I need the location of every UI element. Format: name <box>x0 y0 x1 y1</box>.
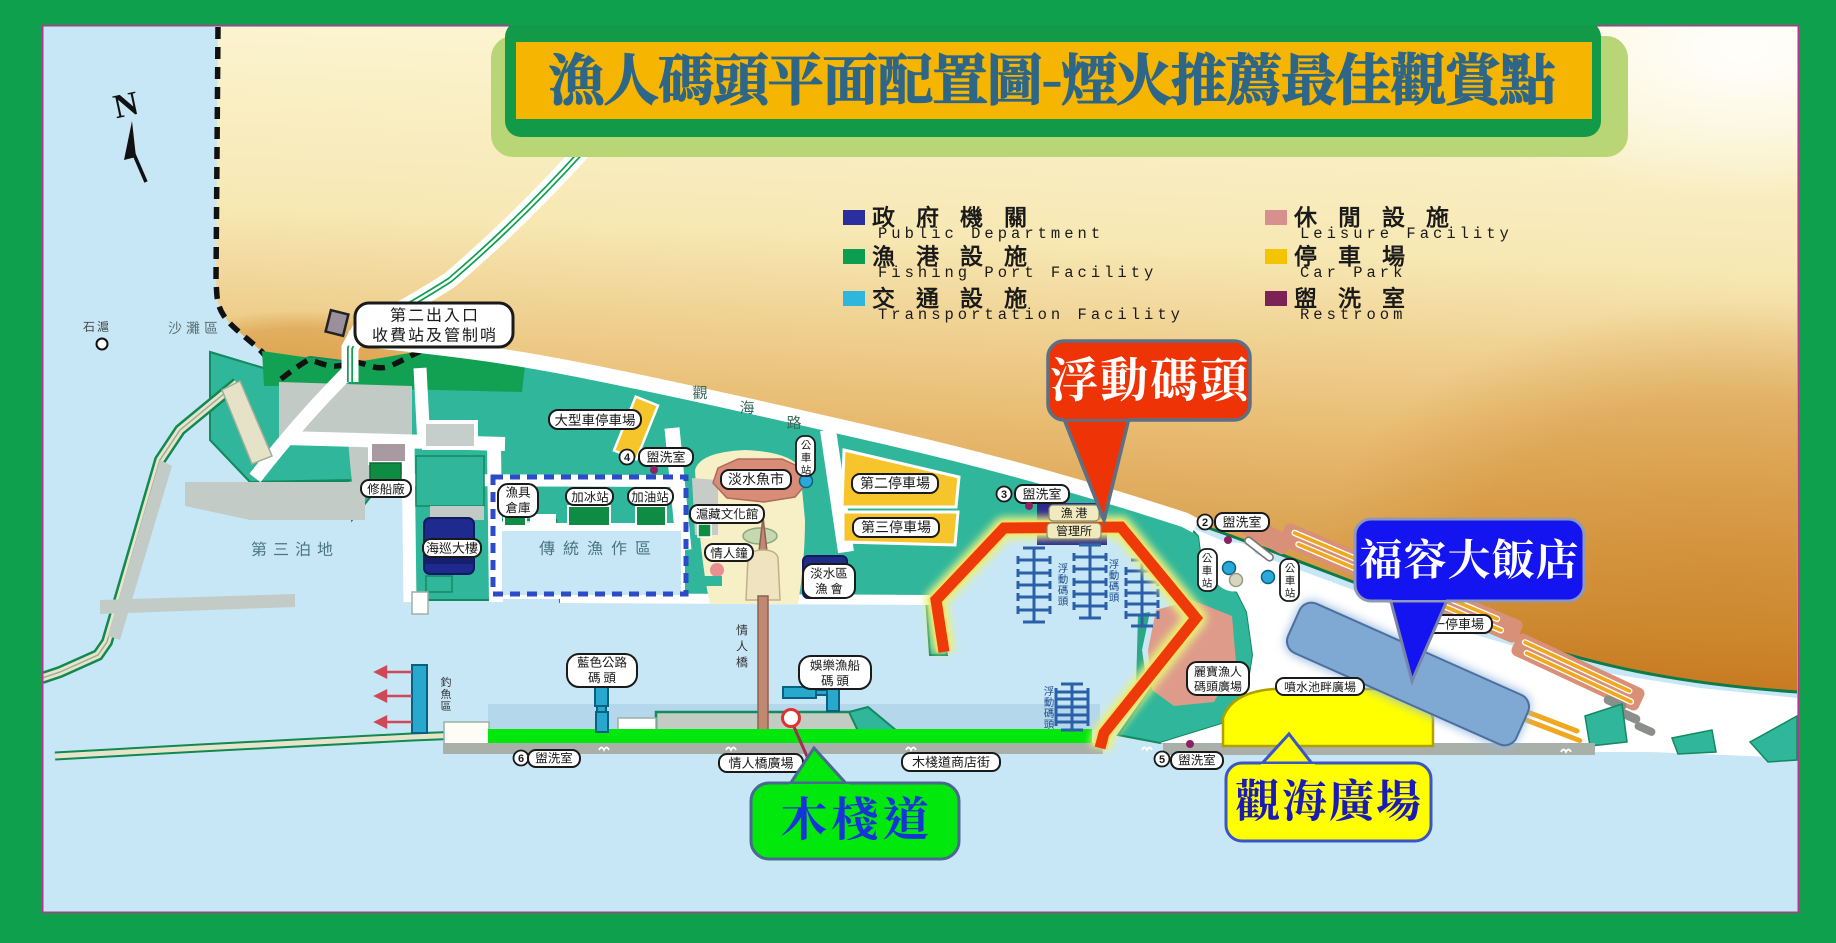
svg-text:Car Park: Car Park <box>1300 264 1406 282</box>
svg-text:3: 3 <box>1001 489 1007 501</box>
svg-text:6: 6 <box>518 753 524 765</box>
svg-text:Fishing Port Facility: Fishing Port Facility <box>878 264 1157 282</box>
svg-text:Restroom: Restroom <box>1300 306 1406 324</box>
svg-text:Leisure Facility: Leisure Facility <box>1300 225 1513 243</box>
svg-text:2: 2 <box>1202 517 1208 529</box>
svg-text:Transportation Facility: Transportation Facility <box>878 306 1184 324</box>
svg-text:5: 5 <box>1159 754 1165 766</box>
svg-text:Public Department: Public Department <box>878 225 1104 243</box>
svg-text:4: 4 <box>624 452 631 464</box>
